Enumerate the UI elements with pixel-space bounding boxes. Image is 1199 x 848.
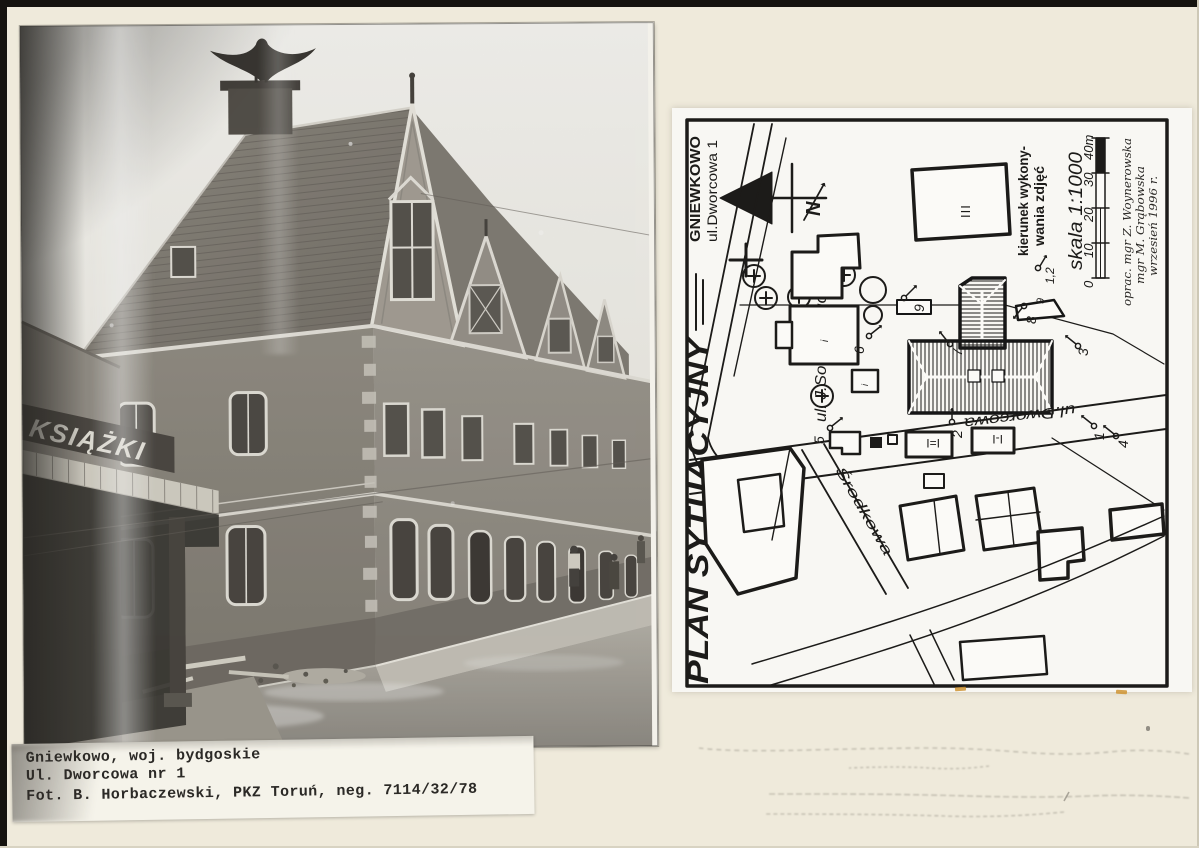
svg-text:9: 9 [911,304,927,312]
tree-icon [860,277,886,303]
church-building-outline [792,234,860,298]
plan-location-label: GNIEWKOWO ul.Dworcowa 1 [688,136,720,242]
svg-text:4: 4 [1115,440,1131,448]
location-line-1: GNIEWKOWO [688,136,704,242]
svg-text:9: 9 [1035,298,1047,304]
south-buildings: I=I I-I [830,428,1014,457]
scale-tick: 20 [1081,207,1096,223]
archive-card-page: KSIĄŻKI [0,0,1199,848]
svg-text:6: 6 [851,346,867,354]
scale-group: skala 1:1000 0 10 20 30 40m [1066,135,1109,288]
legend-photo-directions: kierunek wykony- wania zdjęć 1,2 [1016,146,1057,284]
credit-line-1: oprac. mgr Z. Woynerowska [1120,138,1134,306]
showthrough-marks [645,718,1199,848]
scale-tick: 40m [1081,135,1096,160]
site-plan-sheet: PLAN SYTUACYJNY GNIEWKOWO ul.Dworcowa 1 … [672,108,1192,692]
credit-line-2: mgr M. Grąbowska [1133,166,1147,284]
camera-point-3: 3 [1066,336,1091,356]
location-line-2: ul.Dworcowa 1 [705,140,720,242]
building-photograph: KSIĄŻKI [20,22,658,750]
orange-highlight-mark [1116,690,1127,695]
building-iii: III [912,164,1010,240]
svg-text:8: 8 [1023,316,1039,324]
typewritten-caption: Gniewkowo, woj. bydgoskie Ul. Dworcowa n… [11,736,534,822]
orange-highlight-mark [955,687,966,692]
tree-icon [755,287,777,309]
caption-smudge [11,742,116,822]
camera-point-9b: 9 [1035,298,1047,304]
svg-text:7: 7 [949,347,965,356]
scale-tick: 10 [1081,243,1096,258]
building-label-idash: I-I [992,432,1003,446]
building-iii-label: III [958,204,973,218]
camera-point-1: 1 [1082,416,1107,440]
scan-edge-left [0,0,7,848]
legend-sample-numbers: 1,2 [1043,267,1057,284]
street-label-srodkowa: Środkowa [832,463,897,558]
legend-line-1: kierunek wykony- [1016,146,1031,256]
plan-credits: oprac. mgr Z. Woynerowska mgr M. Grąbows… [1120,138,1160,306]
svg-text:3: 3 [1075,348,1091,356]
tree-icon [864,306,882,324]
ink-speck [1146,726,1150,731]
scan-edge-top [0,0,1199,7]
film-grain [20,22,658,750]
legend-line-2: wania zdjęć [1032,165,1047,247]
scale-tick: 30 [1081,172,1096,187]
credit-line-3: wrzesień 1996 r. [1146,176,1160,276]
site-plan-drawing: PLAN SYTUACYJNY GNIEWKOWO ul.Dworcowa 1 … [672,108,1192,692]
scale-tick: 0 [1081,280,1096,288]
building-label-ieq: I=I [926,436,940,450]
southwest-block [702,448,804,594]
photo-canvas: KSIĄŻKI [20,22,658,750]
